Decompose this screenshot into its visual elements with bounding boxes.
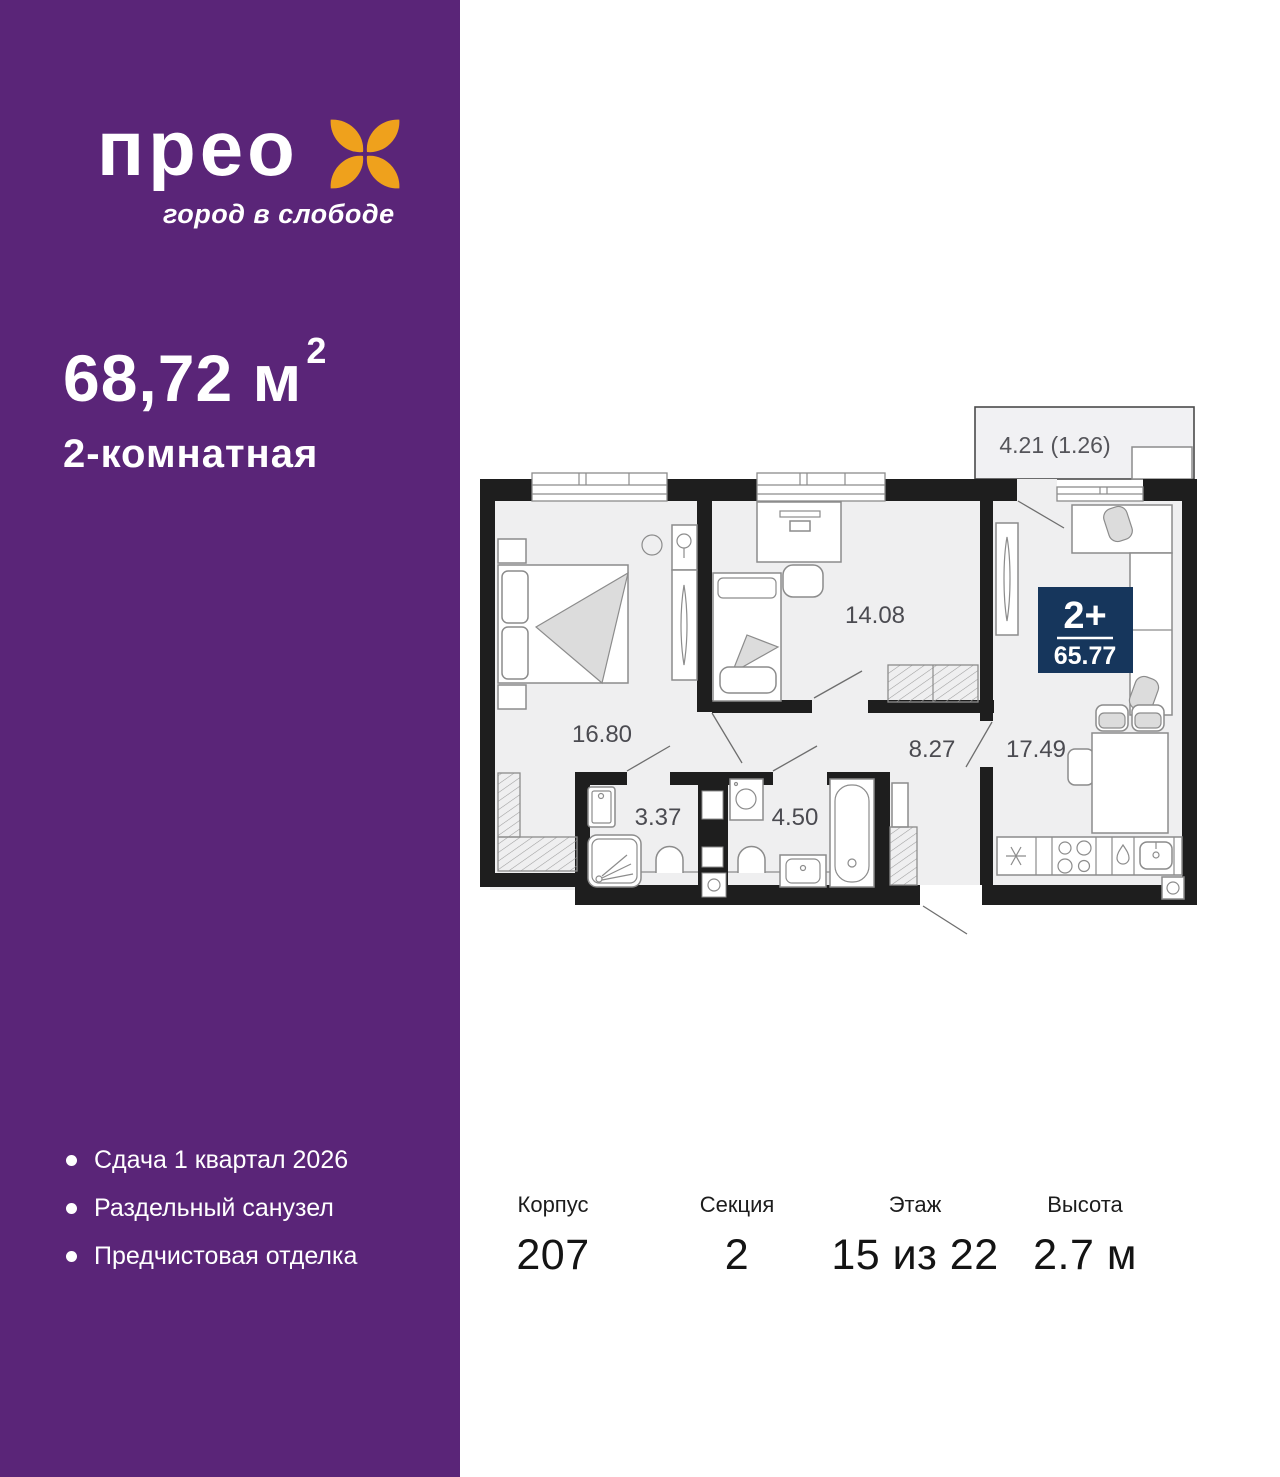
shaft-inset <box>702 847 723 867</box>
detail-height: Высота 2.7 м <box>1000 1192 1170 1280</box>
feature-item: Раздельный санузел <box>66 1194 357 1223</box>
detail-building: Корпус 207 <box>478 1192 628 1280</box>
apartment-area: 68,72 м2 <box>63 340 323 416</box>
room-label-shower-room: 3.37 <box>635 804 682 831</box>
brand-logo: прео город в слободе <box>97 96 437 230</box>
feature-item: Сдача 1 квартал 2026 <box>66 1146 357 1175</box>
detail-value: 2 <box>662 1231 812 1280</box>
logo-text: прео <box>97 96 299 200</box>
room-label-bathroom: 4.50 <box>772 804 819 831</box>
apartment-type: 2-комнатная <box>63 432 323 477</box>
detail-floor: Этаж 15 из 22 <box>820 1192 1010 1280</box>
bullet-dot-icon <box>66 1155 77 1166</box>
shaft-inset <box>702 791 723 819</box>
apartment-card: прео город в слободе 68,72 м2 2-комнат <box>0 0 1280 1477</box>
flower-icon <box>309 98 421 215</box>
mirror-wardrobe <box>672 570 697 680</box>
washing-machine-icon <box>730 779 763 820</box>
plan-badge: 2+ 65.77 <box>1038 587 1133 673</box>
hall-mirror <box>996 523 1018 635</box>
room-label-hallway: 8.27 <box>909 736 956 763</box>
detail-label: Высота <box>1000 1192 1170 1218</box>
bathroom-sink-icon <box>588 787 615 827</box>
room-label-kitchen-living: 17.49 <box>1006 736 1066 763</box>
kitchen-sink-icon <box>1140 842 1172 869</box>
badge-rooms: 2+ <box>1063 595 1106 637</box>
balcony-cabinet <box>1132 447 1192 479</box>
window-icon <box>757 473 885 501</box>
window-icon <box>532 473 667 501</box>
shower-icon <box>588 835 641 887</box>
detail-section: Секция 2 <box>662 1192 812 1280</box>
detail-label: Секция <box>662 1192 812 1218</box>
listing-summary: 68,72 м2 2-комнатная <box>63 340 323 477</box>
bullet-dot-icon <box>66 1203 77 1214</box>
badge-area: 65.77 <box>1054 642 1117 670</box>
bathtub-icon <box>830 779 874 887</box>
wardrobe-icon <box>888 665 978 702</box>
bullet-dot-icon <box>66 1251 77 1262</box>
sidebar: прео город в слободе 68,72 м2 2-комнат <box>0 0 460 1477</box>
detail-value: 2.7 м <box>1000 1231 1170 1280</box>
hall-shelf <box>892 783 908 827</box>
closet-icon <box>498 837 577 871</box>
toilet-icon <box>738 847 765 874</box>
balcony-window-icon <box>1057 487 1143 501</box>
floor-plan: 4.21 (1.26) 16.80 14.08 8.27 17.49 3.37 … <box>480 395 1200 940</box>
detail-label: Этаж <box>820 1192 1010 1218</box>
toilet-icon <box>656 847 683 874</box>
room-label-bedroom: 16.80 <box>572 721 632 748</box>
feature-item: Предчистовая отделка <box>66 1242 357 1271</box>
single-bed <box>713 573 781 701</box>
vanity-sink-icon <box>780 855 826 887</box>
detail-label: Корпус <box>478 1192 628 1218</box>
double-bed <box>498 539 628 709</box>
detail-value: 207 <box>478 1231 628 1280</box>
closet-icon <box>498 773 520 837</box>
entry-closet-icon <box>890 827 917 885</box>
entrance-opening <box>920 885 982 905</box>
room-label-balcony: 4.21 (1.26) <box>999 432 1110 458</box>
room-label-room: 14.08 <box>845 602 905 629</box>
kitchen-counter <box>997 837 1182 875</box>
feature-list: Сдача 1 квартал 2026 Раздельный санузел … <box>66 1146 357 1290</box>
balcony-door-opening <box>1017 479 1057 501</box>
detail-value: 15 из 22 <box>820 1231 1010 1280</box>
shaft-unit <box>702 873 726 897</box>
corner-unit <box>1162 877 1184 899</box>
